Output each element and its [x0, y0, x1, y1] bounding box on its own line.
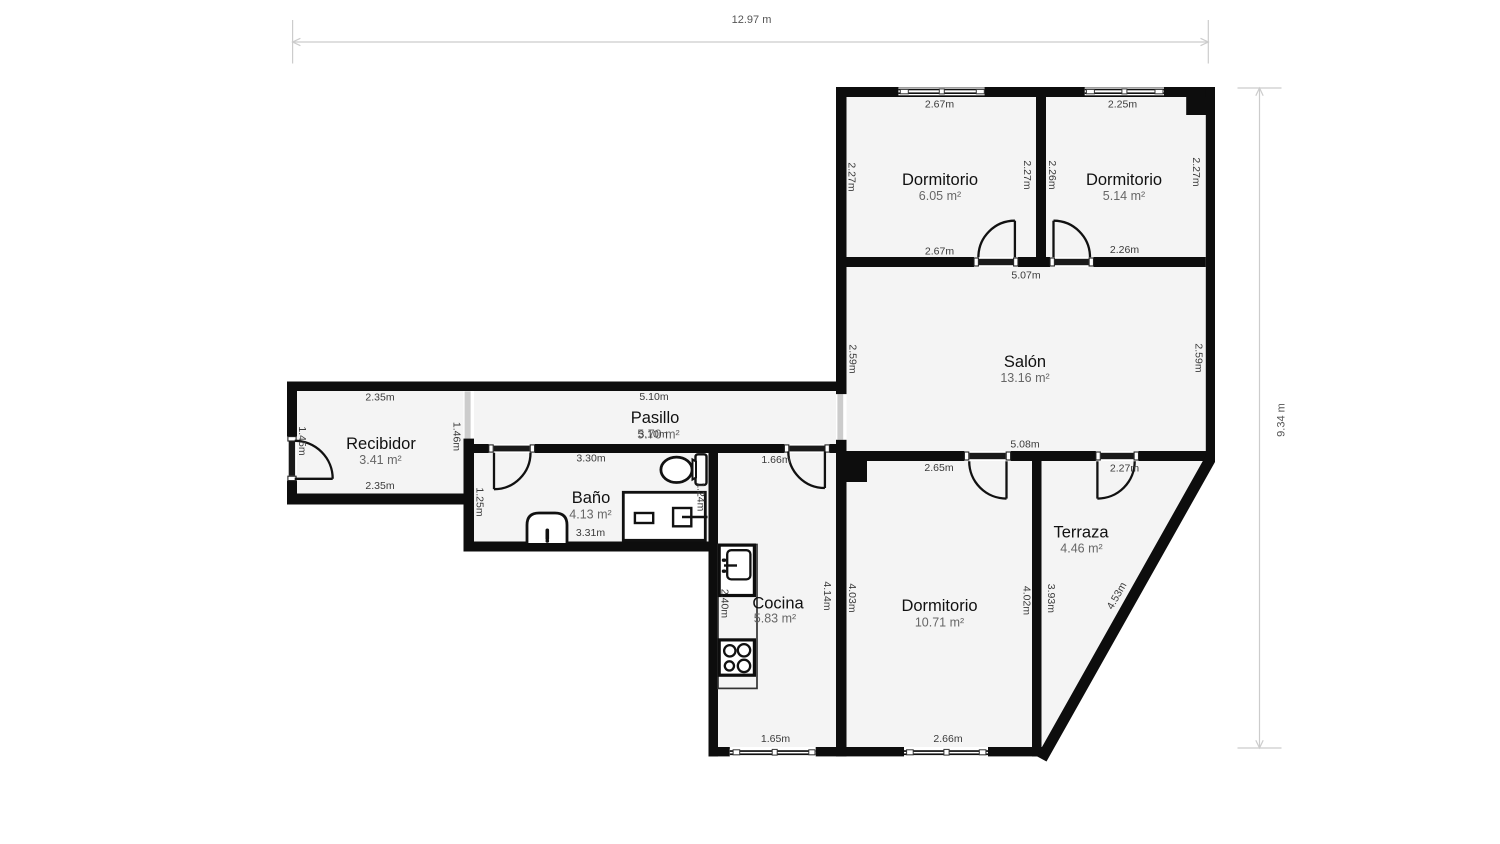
svg-text:Baño: Baño [572, 489, 611, 507]
svg-text:5.07m: 5.07m [1011, 270, 1040, 282]
svg-text:1.24m: 1.24m [695, 482, 707, 511]
svg-text:2.59m: 2.59m [1193, 343, 1205, 372]
svg-text:13.16 m²: 13.16 m² [1000, 371, 1049, 385]
svg-text:Dormitorio: Dormitorio [1086, 171, 1162, 189]
svg-text:Dormitorio: Dormitorio [901, 597, 977, 615]
svg-text:3.30m: 3.30m [576, 453, 605, 465]
svg-text:2.35m: 2.35m [365, 480, 394, 492]
svg-text:Cocina: Cocina [752, 595, 804, 613]
svg-text:2.25m: 2.25m [1108, 99, 1137, 111]
svg-text:4.13 m²: 4.13 m² [569, 508, 611, 522]
svg-text:3.31m: 3.31m [576, 527, 605, 539]
svg-text:9.34 m: 9.34 m [1276, 403, 1288, 437]
svg-text:2.27m: 2.27m [1190, 157, 1202, 186]
svg-text:5.10m: 5.10m [639, 391, 668, 403]
svg-text:2.27m: 2.27m [1021, 160, 1033, 189]
svg-text:2.67m: 2.67m [925, 99, 954, 111]
svg-text:4.46 m²: 4.46 m² [1060, 542, 1102, 556]
svg-text:Terraza: Terraza [1053, 524, 1109, 542]
svg-text:12.97 m: 12.97 m [732, 14, 772, 26]
svg-text:1.45m: 1.45m [296, 426, 308, 455]
svg-text:2.27m: 2.27m [1110, 463, 1139, 475]
svg-text:Recibidor: Recibidor [346, 435, 416, 453]
svg-text:2.59m: 2.59m [847, 344, 859, 373]
svg-text:6.05 m²: 6.05 m² [919, 189, 961, 203]
svg-text:4.14m: 4.14m [821, 581, 833, 610]
svg-text:1.65m: 1.65m [761, 733, 790, 745]
svg-text:3.10m: 3.10m [638, 429, 667, 441]
svg-text:5.14 m²: 5.14 m² [1103, 189, 1145, 203]
svg-text:Dormitorio: Dormitorio [902, 171, 978, 189]
svg-text:Salón: Salón [1004, 353, 1046, 371]
svg-text:2.35m: 2.35m [365, 392, 394, 404]
svg-text:4.02m: 4.02m [1021, 586, 1033, 615]
svg-text:5.83 m²: 5.83 m² [754, 612, 796, 626]
svg-text:2.26m: 2.26m [1046, 160, 1058, 189]
svg-text:4.03m: 4.03m [846, 583, 858, 612]
svg-text:1.66m: 1.66m [761, 454, 790, 466]
svg-text:Pasillo: Pasillo [631, 409, 680, 427]
svg-text:2.40m: 2.40m [719, 589, 731, 618]
svg-text:2.65m: 2.65m [924, 462, 953, 474]
svg-text:2.66m: 2.66m [933, 733, 962, 745]
svg-text:2.67m: 2.67m [925, 246, 954, 258]
svg-text:3.93m: 3.93m [1045, 584, 1057, 613]
svg-text:3.41 m²: 3.41 m² [359, 453, 401, 467]
svg-text:1.25m: 1.25m [474, 487, 486, 516]
svg-text:1.46m: 1.46m [451, 422, 463, 451]
svg-text:10.71 m²: 10.71 m² [915, 616, 964, 630]
svg-text:2.26m: 2.26m [1110, 244, 1139, 256]
svg-text:5.08m: 5.08m [1010, 439, 1039, 451]
svg-text:2.27m: 2.27m [846, 162, 858, 191]
